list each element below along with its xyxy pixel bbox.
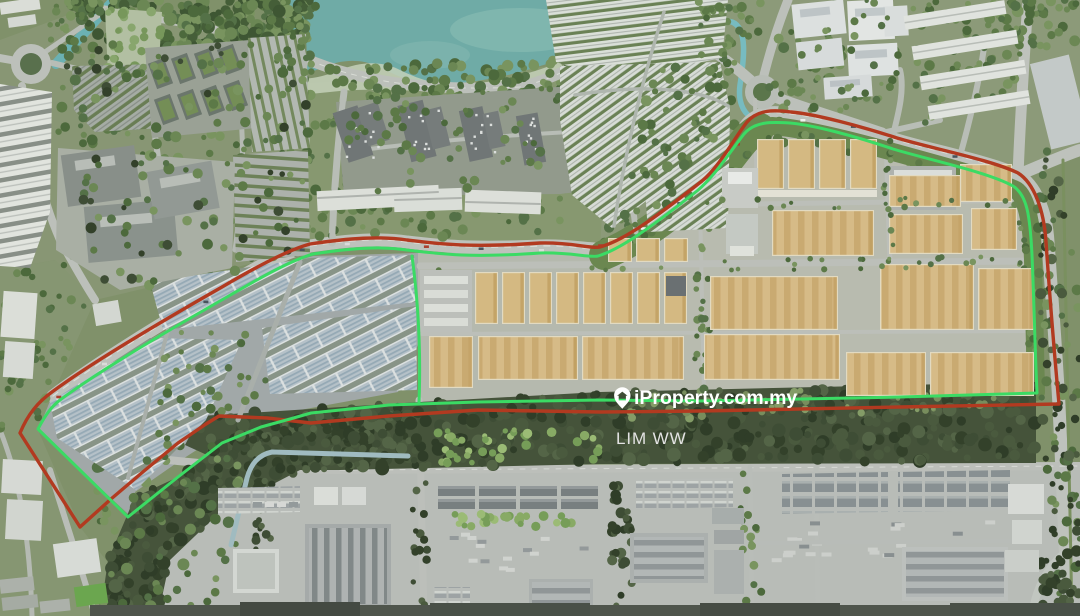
svg-text:LIM WW: LIM WW <box>616 429 687 448</box>
svg-text:iProperty.com.my: iProperty.com.my <box>634 387 797 409</box>
